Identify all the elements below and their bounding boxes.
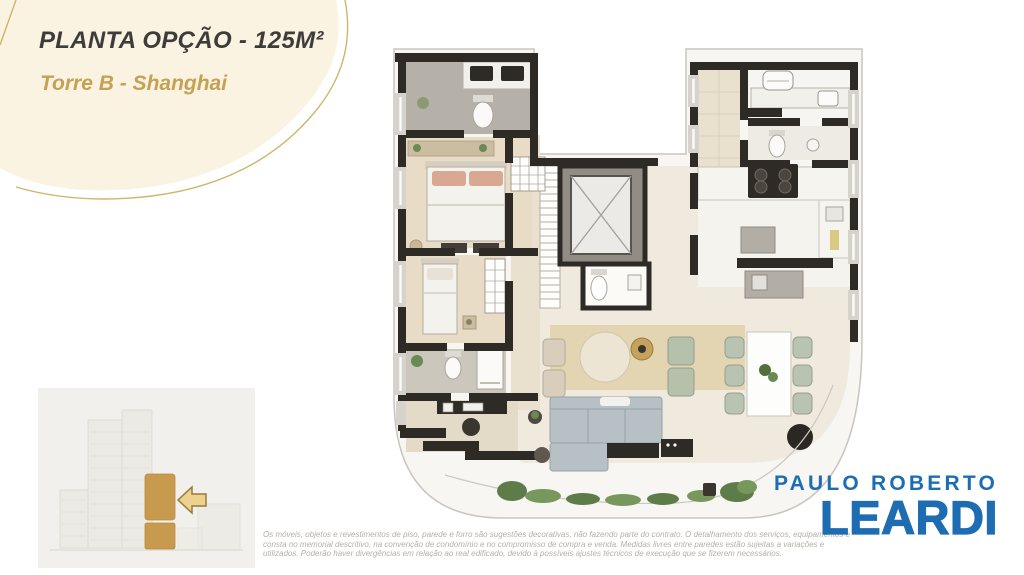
plant-icon: [411, 355, 423, 367]
sink-icon: [470, 66, 493, 81]
tower-locator-diagram: [38, 388, 255, 568]
cooktop-icon: [748, 164, 798, 198]
armchair: [543, 370, 565, 397]
wash-tank-icon: [818, 91, 838, 106]
media-cabinet: [661, 439, 693, 457]
planter-box: [703, 483, 716, 496]
disclaimer-line: utilizados. Poderão haver divergências e…: [263, 549, 875, 559]
logo-name: LEARDI: [774, 496, 998, 540]
toilet-icon: [769, 135, 785, 157]
service-hall: [698, 70, 740, 167]
plant-icon: [531, 411, 539, 419]
round-side-table: [534, 447, 550, 463]
closet-shelves: [485, 259, 505, 313]
monitor-icon: [463, 403, 483, 411]
sink-icon: [826, 207, 843, 221]
plant-icon: [413, 144, 421, 152]
pillow: [469, 171, 503, 186]
lavatory: [583, 264, 649, 308]
toilet-icon: [445, 357, 461, 379]
lamp-icon: [466, 319, 472, 325]
cutting-board: [830, 230, 839, 250]
sink-icon: [628, 275, 641, 290]
sink-icon: [501, 66, 524, 81]
pillow: [427, 268, 453, 280]
dining-chair: [725, 337, 744, 358]
throw-blanket: [600, 397, 630, 406]
locator-highlight: [145, 474, 175, 549]
dining-chair: [793, 393, 812, 414]
toilet-icon: [473, 102, 493, 128]
elevator: [560, 166, 645, 264]
dining-chair: [793, 365, 812, 386]
page-title: PLANTA OPÇÃO - 125M²: [39, 27, 359, 55]
armchair: [668, 337, 694, 365]
plant-icon: [417, 97, 429, 109]
refrigerator-icon: [741, 227, 775, 253]
armchair: [668, 368, 694, 396]
sink-icon: [807, 139, 819, 151]
dining-chair: [725, 393, 744, 414]
brand-logo: PAULO ROBERTO LEARDI: [774, 472, 998, 540]
dining-chair: [725, 365, 744, 386]
disclaimer-line: consta no memorial descritivo, na conven…: [263, 540, 875, 550]
page-subtitle: Torre B - Shanghai: [40, 72, 340, 96]
dining-chair: [793, 337, 812, 358]
ottoman: [580, 332, 630, 382]
plant-icon: [479, 144, 487, 152]
tv-console: [607, 443, 659, 458]
fire-bowl: [787, 424, 813, 450]
sink-icon: [752, 275, 767, 290]
toilet-icon: [591, 276, 607, 300]
office-chair: [462, 418, 480, 436]
tower-locator: [38, 388, 255, 568]
floor-plan-drawing: [385, 45, 870, 525]
page: PLANTA OPÇÃO - 125M² Torre B - Shanghai: [0, 0, 1024, 575]
pillow: [432, 171, 466, 186]
armchair: [543, 339, 565, 366]
floor-plan: [385, 45, 870, 525]
chaise: [550, 443, 608, 471]
service-bathroom-floor: [748, 126, 850, 160]
toilet-tank: [591, 269, 607, 275]
